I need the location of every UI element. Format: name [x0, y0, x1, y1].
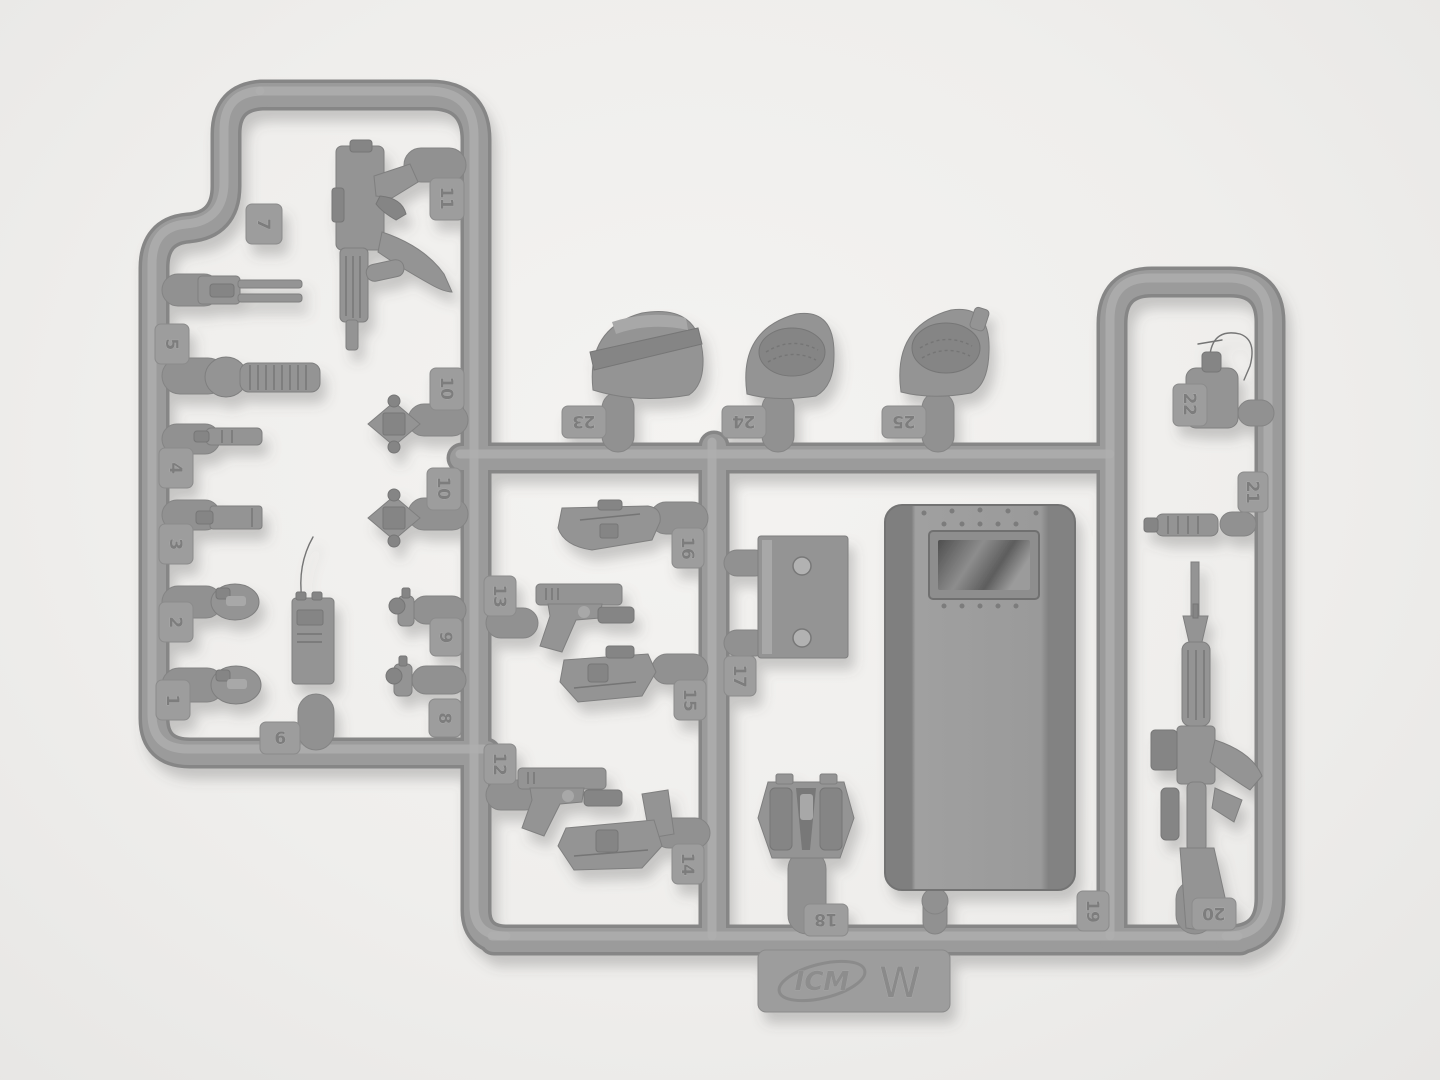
part-number-tab: 17 — [724, 656, 756, 696]
part-number-tab: 13 — [484, 576, 516, 616]
mp5-barrel — [346, 320, 358, 350]
part-diamond-device-b — [368, 489, 420, 547]
part-tactical-belt — [758, 774, 854, 858]
part-number: 8 — [434, 712, 454, 723]
part-number: 1 — [162, 694, 182, 705]
pistol-slide — [536, 584, 622, 605]
part-holster-b — [560, 646, 656, 702]
part-small-cylinder — [194, 428, 262, 445]
helmet-padding — [759, 328, 825, 376]
mp5-foregrip — [365, 258, 406, 283]
m4-front-sight — [1183, 616, 1208, 642]
tool-upper-prong — [238, 280, 302, 288]
belt-pouch — [770, 788, 792, 850]
part-number: 12 — [489, 753, 509, 776]
part-number-tab: 9 — [430, 618, 462, 656]
part-number-tab: 11 — [430, 178, 464, 220]
radio-display — [297, 610, 323, 625]
part-number: 10 — [433, 477, 453, 500]
part-riot-shield — [885, 505, 1075, 890]
brand-tab: ICM W — [758, 950, 950, 1012]
part-grenade-textured — [205, 357, 320, 397]
part-number: 9 — [435, 631, 455, 642]
part-oval-pouch-b — [211, 666, 261, 704]
pistol-slide — [518, 768, 606, 789]
part-number-tab: 4 — [159, 448, 193, 488]
part-number: 10 — [436, 377, 456, 400]
part-number: 15 — [679, 689, 699, 712]
plate-hole — [793, 629, 811, 647]
m4-magazine — [1210, 740, 1262, 790]
part-radio — [292, 537, 334, 684]
plate-hole — [793, 557, 811, 575]
part-number: 18 — [815, 909, 838, 929]
part-number-tab: 7 — [246, 204, 282, 244]
part-number-tab: 16 — [672, 528, 704, 568]
part-number-tab: 12 — [484, 744, 516, 784]
part-helmet-interior-b — [900, 306, 990, 396]
m4-side-accessory — [1161, 788, 1179, 840]
mp5-handguard — [340, 248, 368, 322]
part-number: 16 — [677, 537, 697, 560]
part-number: 11 — [436, 187, 456, 210]
part-number-tab: 1 — [156, 680, 190, 720]
part-number-tab: 25 — [882, 406, 926, 438]
part-number: 6 — [274, 729, 285, 749]
shield-window-glass — [938, 540, 1030, 590]
part-number: 25 — [893, 411, 916, 431]
icm-logo-text: ICM — [795, 967, 850, 997]
part-number: 4 — [165, 462, 185, 474]
m4-buffer-tube — [1187, 782, 1206, 852]
helmet-padding — [912, 323, 980, 373]
pistol-grip — [540, 604, 602, 652]
part-helmet-goggles — [590, 311, 703, 398]
part-number-tab: 6 — [260, 722, 300, 754]
part-number-tab: 23 — [562, 406, 606, 438]
belt-pouch — [820, 788, 842, 850]
part-number-tab: 19 — [1077, 891, 1109, 931]
part-oval-pouch-a — [211, 584, 259, 620]
part-helmet-interior-a — [746, 313, 834, 398]
part-pistol-light-a — [536, 584, 634, 652]
mp5-cocking-tube — [332, 188, 344, 222]
pistol-tac-light — [584, 790, 622, 806]
part-number-tab: 21 — [1238, 472, 1268, 512]
part-number: 13 — [489, 585, 509, 608]
tool-lower-prong — [238, 294, 302, 302]
sprue-drawing: 1 2 3 4 5 6 7 8 9 10 10 11 12 13 14 15 1… — [0, 0, 1440, 1080]
m4-pistol-grip — [1212, 788, 1242, 822]
part-number-tab: 18 — [804, 904, 848, 936]
part-number-tab: 10 — [427, 468, 461, 510]
mp5-rear-sight — [350, 140, 372, 152]
part-diamond-device-a — [368, 395, 420, 453]
part-number-tab: 8 — [429, 699, 461, 737]
part-number: 7 — [253, 218, 273, 229]
part-number-tab: 2 — [159, 602, 193, 642]
part-holster-a — [558, 500, 660, 550]
part-small-grenade-b — [386, 656, 412, 696]
part-number-tab: 3 — [159, 524, 193, 564]
part-number: 2 — [165, 616, 185, 627]
sprue-photo: 1 2 3 4 5 6 7 8 9 10 10 11 12 13 14 15 1… — [0, 0, 1440, 1080]
part-small-grenade-a — [389, 588, 414, 626]
pistol-tac-light — [598, 607, 634, 623]
sprue-frame: 1 2 3 4 5 6 7 8 9 10 10 11 12 13 14 15 1… — [152, 91, 1274, 1012]
m4-receiver — [1177, 726, 1215, 784]
part-number-tab: 5 — [155, 324, 189, 364]
part-number: 23 — [573, 411, 596, 431]
part-number: 5 — [161, 338, 181, 349]
part-number: 24 — [732, 411, 755, 431]
part-number-tab: 15 — [674, 680, 706, 720]
part-two-pronged-tool — [198, 276, 302, 304]
part-number: 22 — [1179, 393, 1199, 416]
sprue-letter: W — [879, 958, 921, 1007]
part-number: 3 — [165, 538, 185, 549]
part-number: 19 — [1082, 900, 1102, 923]
part-number-tab: 20 — [1192, 898, 1236, 930]
part-m4-carbine — [1151, 562, 1262, 930]
belt-buckle — [800, 794, 813, 820]
part-number: 17 — [729, 665, 749, 688]
part-number: 21 — [1242, 481, 1262, 504]
radio-antenna — [301, 537, 313, 600]
sprue-rails — [152, 91, 1270, 940]
part-number-tab: 24 — [722, 406, 766, 438]
part-number-tab: 10 — [430, 368, 464, 410]
part-number: 14 — [677, 853, 697, 876]
m4-optic — [1151, 730, 1177, 770]
part-number: 20 — [1202, 903, 1225, 923]
part-mounting-plate — [758, 536, 848, 658]
part-suppressor — [1144, 514, 1218, 536]
part-number-tab: 14 — [672, 844, 704, 884]
part-number-tab: 22 — [1173, 384, 1207, 426]
